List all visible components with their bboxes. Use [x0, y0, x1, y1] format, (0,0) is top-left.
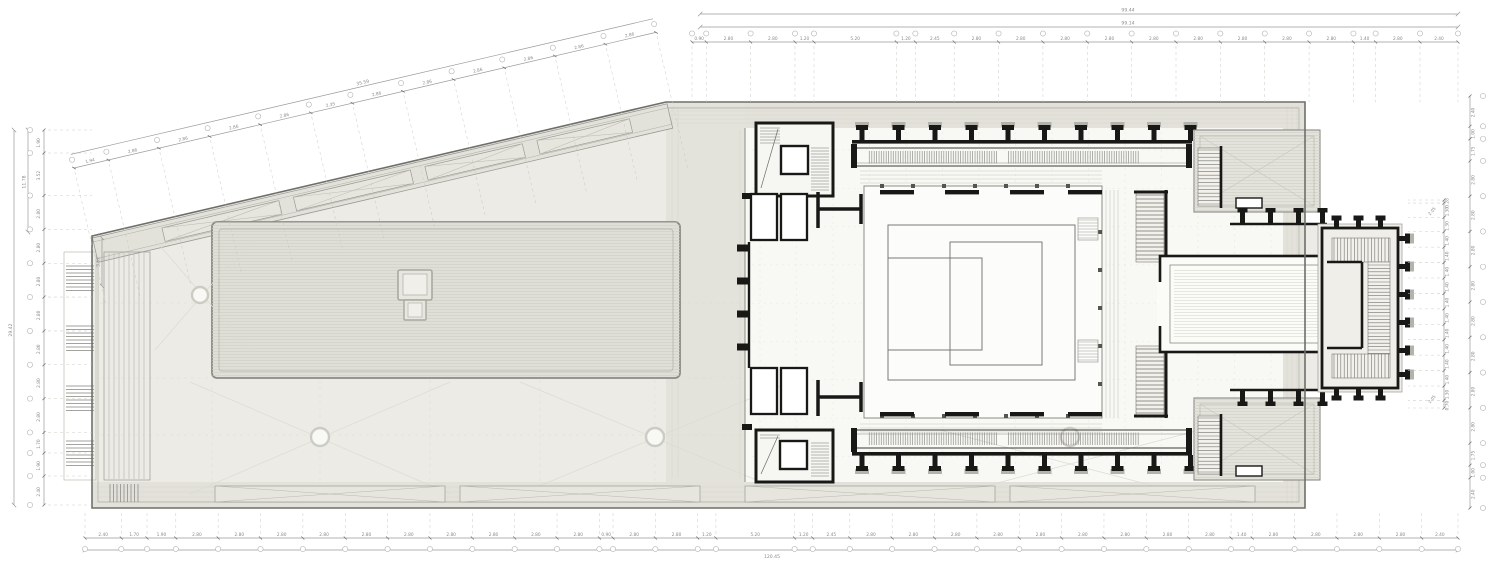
column	[1042, 455, 1047, 467]
svg-text:3.52: 3.52	[36, 171, 42, 181]
dim-total-left-upper: 11.78	[22, 175, 28, 188]
svg-text:1.20: 1.20	[799, 532, 809, 538]
column	[1006, 129, 1011, 141]
svg-text:2.86: 2.86	[371, 90, 382, 98]
svg-text:2.86: 2.86	[624, 31, 635, 39]
svg-text:1.40: 1.40	[1444, 328, 1450, 338]
svg-text:2.80: 2.80	[629, 532, 639, 538]
roof-drain	[311, 428, 329, 446]
svg-text:1.40: 1.40	[1444, 359, 1450, 369]
svg-text:2.86: 2.86	[229, 124, 240, 132]
floor-plan-drawing: 99.44 99.14 120.45 29.42 11.78 3.52 35.5…	[0, 0, 1500, 568]
svg-text:2.80: 2.80	[866, 532, 876, 538]
svg-text:5.20: 5.20	[750, 532, 760, 538]
column	[1152, 129, 1157, 141]
svg-text:2.80: 2.80	[1353, 532, 1363, 538]
svg-text:2.86: 2.86	[473, 67, 484, 75]
svg-text:2.86: 2.86	[279, 112, 290, 120]
column	[1188, 129, 1193, 141]
svg-text:2.80: 2.80	[1120, 532, 1130, 538]
svg-text:2.80: 2.80	[1282, 36, 1292, 42]
svg-text:2.45: 2.45	[930, 36, 940, 42]
roof-drain	[646, 428, 664, 446]
svg-text:0.28: 0.28	[1444, 198, 1450, 208]
svg-text:1.40: 1.40	[1444, 313, 1450, 323]
svg-text:2.80: 2.80	[573, 532, 583, 538]
column	[1006, 455, 1011, 467]
svg-text:2.80: 2.80	[1105, 36, 1115, 42]
svg-text:2.80: 2.80	[1205, 532, 1215, 538]
svg-text:2.80: 2.80	[672, 532, 682, 538]
svg-text:2.80: 2.80	[909, 532, 919, 538]
column	[896, 455, 901, 467]
column	[1042, 129, 1047, 141]
svg-text:2.86: 2.86	[422, 79, 433, 87]
dim-oblique-2: 2.05	[1427, 394, 1437, 405]
svg-text:2.80: 2.80	[724, 36, 734, 42]
svg-text:1.40: 1.40	[1444, 282, 1450, 292]
svg-text:1.90: 1.90	[36, 138, 42, 148]
svg-text:2.40: 2.40	[1470, 107, 1476, 117]
column	[896, 129, 901, 141]
svg-text:1.20: 1.20	[702, 532, 712, 538]
svg-text:1.75: 1.75	[1470, 450, 1476, 460]
svg-text:2.80: 2.80	[446, 532, 456, 538]
column	[1115, 129, 1120, 141]
svg-text:1.40: 1.40	[1444, 375, 1450, 385]
svg-text:2.40: 2.40	[36, 487, 42, 497]
svg-text:2.80: 2.80	[1393, 36, 1403, 42]
svg-text:2.80: 2.80	[1470, 245, 1476, 255]
dim-total-left-outer: 29.42	[8, 323, 14, 336]
svg-text:2.80: 2.80	[1326, 36, 1336, 42]
svg-text:2.80: 2.80	[768, 36, 778, 42]
dim-total-top-upper: 99.44	[1121, 8, 1134, 14]
svg-text:2.40: 2.40	[1470, 489, 1476, 499]
column	[1079, 129, 1084, 141]
svg-text:2.80: 2.80	[489, 532, 499, 538]
svg-text:2.80: 2.80	[1238, 36, 1248, 42]
svg-text:1.40: 1.40	[1360, 36, 1370, 42]
svg-text:2.80: 2.80	[1470, 175, 1476, 185]
floor-plan-sheet: 99.44 99.14 120.45 29.42 11.78 3.52 35.5…	[0, 0, 1500, 568]
svg-text:1.40: 1.40	[1237, 532, 1247, 538]
svg-text:1.30: 1.30	[1444, 389, 1450, 399]
svg-text:2.80: 2.80	[362, 532, 372, 538]
column	[969, 455, 974, 467]
svg-text:2.86: 2.86	[523, 55, 534, 63]
svg-text:1.40: 1.40	[1444, 236, 1450, 246]
column	[1115, 455, 1120, 467]
svg-text:2.80: 2.80	[36, 412, 42, 422]
svg-text:2.80: 2.80	[277, 532, 287, 538]
svg-text:2.80: 2.80	[1163, 532, 1173, 538]
vestibule-room	[751, 194, 777, 240]
svg-text:0.70: 0.70	[1444, 400, 1450, 410]
svg-text:2.80: 2.80	[36, 378, 42, 388]
column	[1188, 455, 1193, 467]
svg-text:2.40: 2.40	[1435, 532, 1445, 538]
svg-text:2.40: 2.40	[1434, 36, 1444, 42]
dim-oblique-1: 2.05	[1427, 206, 1437, 217]
svg-text:2.80: 2.80	[972, 36, 982, 42]
svg-text:2.40: 2.40	[98, 532, 108, 538]
svg-text:2.80: 2.80	[1470, 422, 1476, 432]
svg-text:1.20: 1.20	[901, 36, 911, 42]
column	[1079, 455, 1084, 467]
svg-text:2.80: 2.80	[1269, 532, 1279, 538]
column	[969, 129, 974, 141]
svg-text:2.45: 2.45	[826, 532, 836, 538]
svg-text:2.80: 2.80	[1470, 387, 1476, 397]
column	[860, 129, 865, 141]
svg-text:0.90: 0.90	[601, 532, 611, 538]
svg-text:1.75: 1.75	[1470, 146, 1476, 156]
svg-text:2.80: 2.80	[1193, 36, 1203, 42]
svg-text:1.90: 1.90	[157, 532, 167, 538]
svg-text:2.80: 2.80	[1470, 316, 1476, 326]
entrance-portico	[1318, 216, 1414, 401]
svg-text:2.80: 2.80	[36, 277, 42, 287]
vestibule-room	[781, 194, 807, 240]
svg-text:2.86: 2.86	[127, 147, 138, 155]
vestibule-room	[751, 368, 777, 414]
svg-text:2.35: 2.35	[325, 101, 336, 109]
dim-total-bottom: 120.45	[764, 554, 780, 560]
svg-text:2.80: 2.80	[1016, 36, 1026, 42]
svg-text:2.80: 2.80	[1311, 532, 1321, 538]
svg-text:2.80: 2.80	[1149, 36, 1159, 42]
column	[933, 455, 938, 467]
svg-text:2.80: 2.80	[36, 344, 42, 354]
dim-offset-left: 3.52	[96, 257, 102, 267]
svg-text:2.80: 2.80	[993, 532, 1003, 538]
svg-text:2.80: 2.80	[1470, 281, 1476, 291]
svg-text:1.70: 1.70	[36, 439, 42, 449]
svg-text:1.30: 1.30	[1444, 207, 1450, 217]
svg-text:2.80: 2.80	[319, 532, 329, 538]
column	[1152, 455, 1157, 467]
svg-text:1.40: 1.40	[1444, 251, 1450, 261]
svg-text:1.90: 1.90	[36, 461, 42, 471]
column	[860, 455, 865, 467]
svg-text:1.70: 1.70	[129, 532, 139, 538]
svg-text:2.80: 2.80	[235, 532, 245, 538]
svg-text:2.80: 2.80	[1470, 351, 1476, 361]
roof-drain	[192, 287, 208, 303]
svg-text:2.80: 2.80	[1060, 36, 1070, 42]
svg-text:2.80: 2.80	[36, 310, 42, 320]
svg-text:2.80: 2.80	[1036, 532, 1046, 538]
central-hall	[864, 184, 1102, 418]
svg-text:1.94: 1.94	[85, 157, 96, 165]
svg-text:2.80: 2.80	[36, 243, 42, 253]
svg-text:2.80: 2.80	[951, 532, 961, 538]
svg-text:1.20: 1.20	[800, 36, 810, 42]
svg-text:2.80: 2.80	[531, 532, 541, 538]
svg-text:1.30: 1.30	[1444, 221, 1450, 231]
svg-text:0.90: 0.90	[694, 36, 704, 42]
svg-text:2.80: 2.80	[1396, 532, 1406, 538]
svg-text:2.86: 2.86	[574, 43, 585, 51]
svg-text:2.86: 2.86	[178, 135, 189, 143]
vestibule-room	[781, 368, 807, 414]
svg-text:5.20: 5.20	[850, 36, 860, 42]
svg-text:2.80: 2.80	[404, 532, 414, 538]
raised-roof-slab	[212, 222, 680, 378]
svg-text:2.80: 2.80	[192, 532, 202, 538]
svg-text:2.80: 2.80	[1078, 532, 1088, 538]
dim-total-top-lower: 99.14	[1121, 21, 1134, 27]
svg-text:2.80: 2.80	[36, 209, 42, 219]
svg-text:2.80: 2.80	[1470, 210, 1476, 220]
svg-text:1.40: 1.40	[1444, 267, 1450, 277]
column	[933, 129, 938, 141]
svg-text:1.40: 1.40	[1444, 344, 1450, 354]
svg-text:1.40: 1.40	[1444, 297, 1450, 307]
